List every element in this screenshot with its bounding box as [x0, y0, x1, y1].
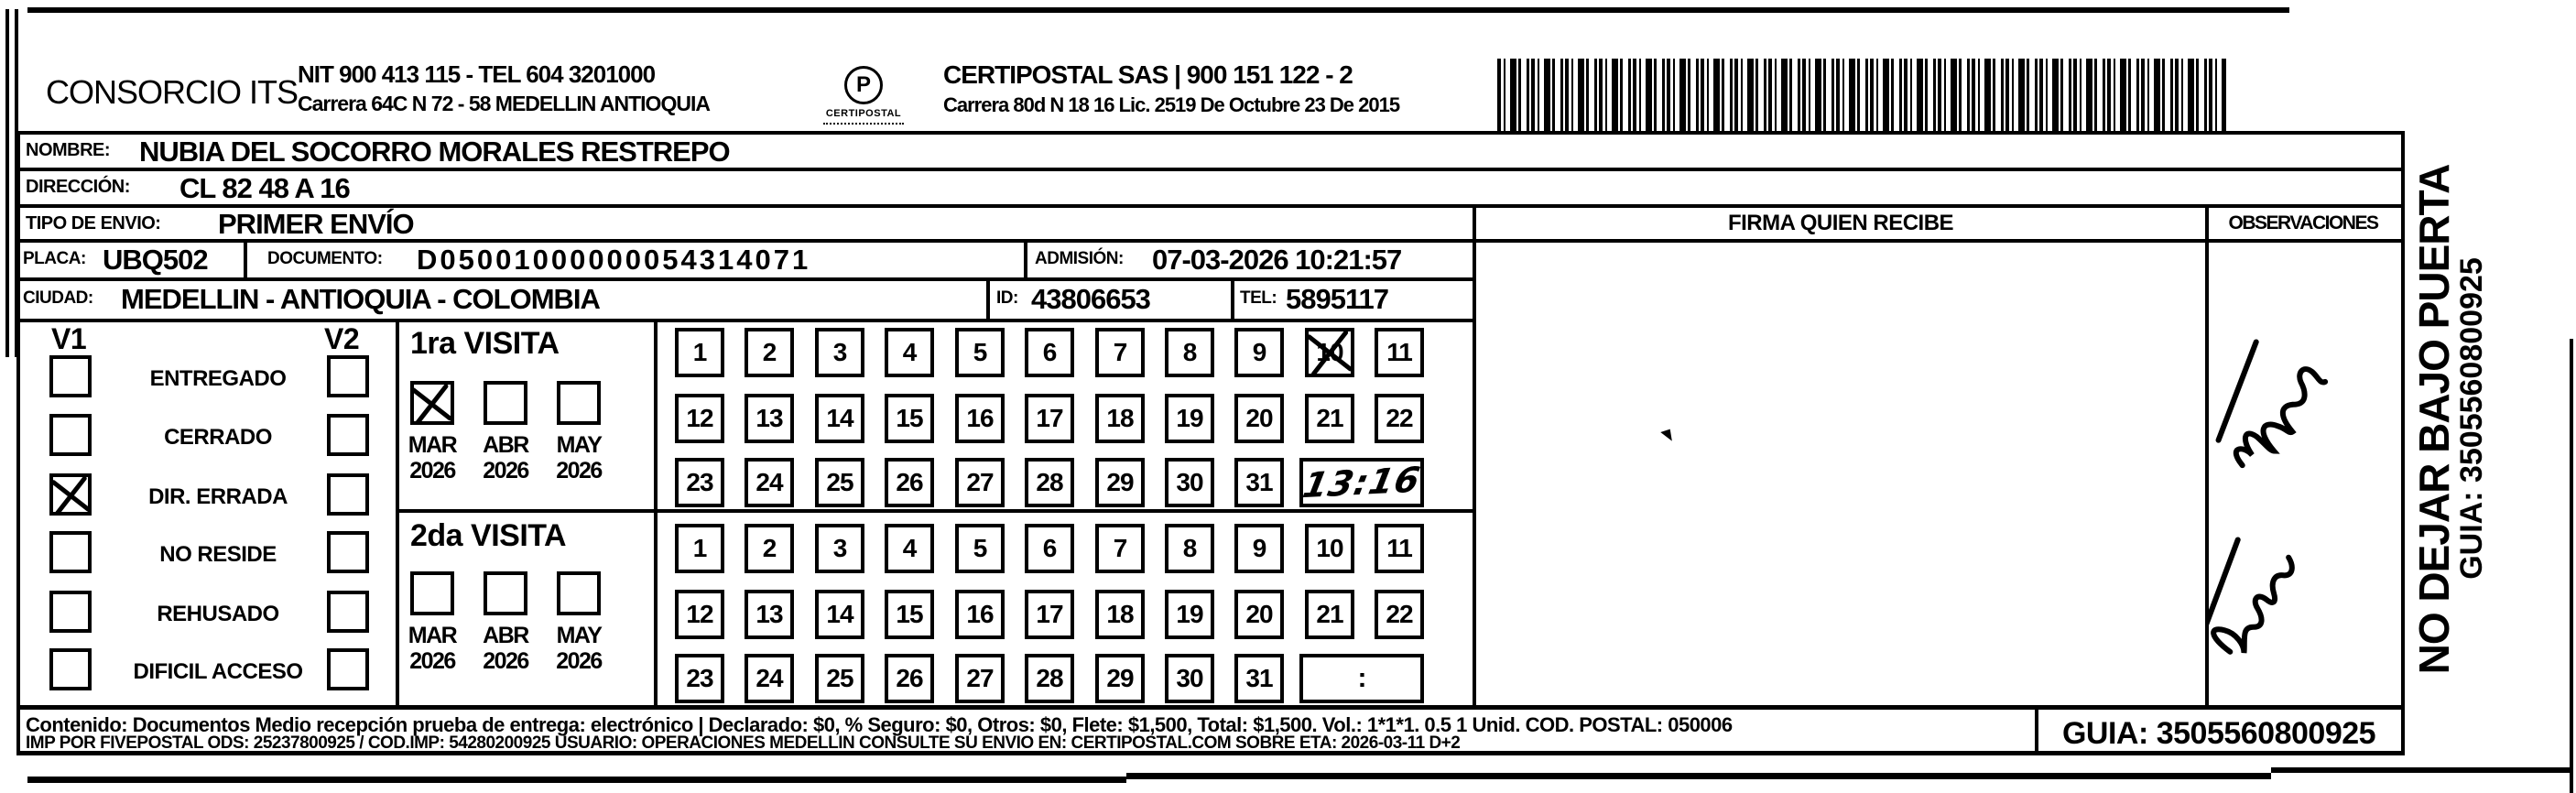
status-label-dir-errada: DIR. ERRADA	[108, 484, 328, 510]
day-number: 27	[966, 468, 993, 497]
certipostal-logo-icon: P	[844, 66, 883, 104]
company-nit-line: NIT 900 413 115 - TEL 604 3201000	[298, 60, 655, 89]
company-address-line: Carrera 64C N 72 - 58 MEDELLIN ANTIOQUIA	[298, 92, 710, 116]
visita2-day-19[interactable]: 19	[1165, 590, 1214, 639]
visita1-day-2[interactable]: 2	[745, 328, 794, 377]
day-number: 18	[1106, 404, 1133, 433]
documento-label: DOCUMENTO:	[267, 249, 383, 269]
day-number: 16	[966, 600, 993, 629]
logo-caption: CERTIPOSTAL	[818, 108, 909, 119]
scanned-delivery-form: { "header": { "company_left": "CONSORCIO…	[0, 0, 2576, 793]
day-number: 28	[1036, 468, 1062, 497]
day-number: 20	[1245, 600, 1272, 629]
visita1-time-value: 13:16	[1299, 460, 1424, 506]
day-number: 25	[826, 468, 853, 497]
scan-artifact-bottom-line	[27, 777, 1126, 783]
visita2-day-25[interactable]: 25	[815, 654, 864, 703]
visita1-day-27[interactable]: 27	[955, 458, 1005, 507]
day-number: 4	[903, 534, 917, 563]
visita2-day-22[interactable]: 22	[1375, 590, 1424, 639]
side-guia-text: GUIA: 3505560800925	[2454, 144, 2491, 693]
visita1-day-6[interactable]: 6	[1025, 328, 1074, 377]
visita1-day-14[interactable]: 14	[815, 394, 864, 443]
status-label-no-reside: NO RESIDE	[108, 542, 328, 568]
visita1-day-24[interactable]: 24	[745, 458, 794, 507]
visita2-day-27[interactable]: 27	[955, 654, 1005, 703]
visita2-day-10[interactable]: 10	[1305, 524, 1354, 573]
day-number: 29	[1106, 664, 1133, 693]
day-number: 5	[973, 534, 987, 563]
day-number: 7	[1114, 534, 1127, 563]
visita1-month-checkbox-may[interactable]	[557, 381, 601, 425]
nombre-label: NOMBRE:	[26, 140, 110, 161]
visita2-day-3[interactable]: 3	[815, 524, 864, 573]
visita2-day-15[interactable]: 15	[885, 590, 934, 639]
logo-letter: P	[856, 72, 871, 98]
visita2-day-18[interactable]: 18	[1095, 590, 1145, 639]
visita2-month-checkbox-mar[interactable]	[410, 571, 454, 615]
barcode	[1497, 59, 2226, 134]
visita1-month-checkbox-abr[interactable]	[484, 381, 527, 425]
ink-mark	[1660, 429, 1673, 444]
visita1-time-box[interactable]: 13:16	[1299, 458, 1424, 507]
table-line	[986, 277, 990, 322]
visita2-day-9[interactable]: 9	[1234, 524, 1284, 573]
v2-checkbox-no-reside[interactable]	[327, 531, 369, 573]
day-number: 22	[1386, 600, 1412, 629]
visita1-day-7[interactable]: 7	[1095, 328, 1145, 377]
visita2-day-30[interactable]: 30	[1165, 654, 1214, 703]
day-number: 11	[1386, 534, 1412, 563]
visita2-day-26[interactable]: 26	[885, 654, 934, 703]
visita2-day-5[interactable]: 5	[955, 524, 1005, 573]
status-label-dificil-acceso: DIFICIL ACCESO	[108, 659, 328, 685]
day-number: 10	[1316, 534, 1342, 563]
day-number: 17	[1036, 600, 1062, 629]
day-number: 9	[1253, 338, 1266, 367]
visita1-day-28[interactable]: 28	[1025, 458, 1074, 507]
visita-section: 1ra VISITA 2da VISITA MAR2026ABR2026MAY2…	[396, 319, 654, 705]
day-number: 25	[826, 664, 853, 693]
visita1-day-31[interactable]: 31	[1234, 458, 1284, 507]
visita1-year-label-abr: 2026	[473, 458, 538, 484]
scan-artifact-bottom-line	[1126, 773, 2271, 779]
v1-checkbox-rehusado[interactable]	[49, 591, 92, 633]
visita2-day-1[interactable]: 1	[675, 524, 724, 573]
day-number: 30	[1176, 468, 1202, 497]
day-number: 19	[1176, 404, 1202, 433]
visita2-year-label-mar: 2026	[399, 648, 465, 675]
visita2-day-12[interactable]: 12	[675, 590, 724, 639]
nombre-value: NUBIA DEL SOCORRO MORALES RESTREPO	[139, 136, 730, 168]
visita2-month-label-mar: MAR	[399, 623, 465, 649]
visita2-time-value: :	[1358, 663, 1366, 694]
ciudad-label: CIUDAD:	[23, 288, 93, 309]
visita1-day-25[interactable]: 25	[815, 458, 864, 507]
v1-column-header: V1	[51, 322, 86, 356]
status-label-rehusado: REHUSADO	[108, 602, 328, 627]
day-number: 6	[1043, 534, 1057, 563]
x-mark	[411, 382, 453, 424]
visita1-month-label-mar: MAR	[399, 432, 465, 459]
visita2-day-2[interactable]: 2	[745, 524, 794, 573]
day-number: 23	[686, 468, 712, 497]
v2-checkbox-entregado[interactable]	[327, 355, 369, 397]
daygrid-section: 1234567891011121314151617181920212223242…	[658, 319, 1473, 705]
observaciones-area[interactable]	[2205, 239, 2401, 705]
scan-artifact-right-line	[2570, 339, 2573, 793]
visita1-day-18[interactable]: 18	[1095, 394, 1145, 443]
visita1-month-label-abr: ABR	[473, 432, 538, 459]
day-number: 18	[1106, 600, 1133, 629]
day-number: 8	[1183, 534, 1197, 563]
day-number: 24	[755, 468, 782, 497]
visita1-day-17[interactable]: 17	[1025, 394, 1074, 443]
v1-checkbox-entregado[interactable]	[49, 355, 92, 397]
day-number: 12	[686, 600, 712, 629]
day-number: 6	[1043, 338, 1057, 367]
visita1-day-1[interactable]: 1	[675, 328, 724, 377]
day-number: 7	[1114, 338, 1127, 367]
day-number: 14	[826, 600, 853, 629]
status-label-entregado: ENTREGADO	[108, 366, 328, 392]
v2-checkbox-cerrado[interactable]	[327, 414, 369, 456]
visita1-title: 1ra VISITA	[410, 326, 560, 362]
documento-value: D05001000000054314071	[417, 244, 810, 277]
day-number: 2	[763, 534, 777, 563]
visita1-day-30[interactable]: 30	[1165, 458, 1214, 507]
day-number: 11	[1386, 338, 1412, 367]
visita1-day-10[interactable]: 10	[1305, 328, 1354, 377]
day-number: 10	[1316, 338, 1342, 367]
visita1-day-13[interactable]: 13	[745, 394, 794, 443]
visita1-day-3[interactable]: 3	[815, 328, 864, 377]
visita2-month-label-abr: ABR	[473, 623, 538, 649]
visita2-year-label-may: 2026	[546, 648, 612, 675]
visita2-day-14[interactable]: 14	[815, 590, 864, 639]
x-mark	[50, 474, 91, 515]
day-number: 19	[1176, 600, 1202, 629]
visita1-month-checkbox-mar[interactable]	[410, 381, 454, 425]
visita1-year-label-mar: 2026	[399, 458, 465, 484]
visita1-day-9[interactable]: 9	[1234, 328, 1284, 377]
table-line	[16, 277, 1476, 281]
placa-label: PLACA:	[23, 249, 86, 269]
day-number: 29	[1106, 468, 1133, 497]
visita1-day-16[interactable]: 16	[955, 394, 1005, 443]
visita1-day-23[interactable]: 23	[675, 458, 724, 507]
day-number: 31	[1245, 664, 1272, 693]
visita2-day-17[interactable]: 17	[1025, 590, 1074, 639]
scan-artifact-top-line	[27, 7, 2289, 13]
visita2-title: 2da VISITA	[410, 518, 566, 554]
firma-area[interactable]	[1476, 239, 2205, 705]
visita2-year-label-abr: 2026	[473, 648, 538, 675]
id-label: ID:	[996, 288, 1018, 309]
day-number: 3	[833, 534, 847, 563]
day-number: 24	[755, 664, 782, 693]
visita2-day-23[interactable]: 23	[675, 654, 724, 703]
visita1-year-label-may: 2026	[546, 458, 612, 484]
tel-value: 5895117	[1286, 283, 1388, 316]
day-number: 16	[966, 404, 993, 433]
table-line	[16, 131, 2405, 135]
visita1-day-11[interactable]: 11	[1375, 328, 1424, 377]
ciudad-value: MEDELLIN - ANTIOQUIA - COLOMBIA	[121, 283, 600, 316]
side-warning-text: NO DEJAR BAJO PUERTA	[2409, 99, 2457, 740]
day-number: 15	[896, 600, 922, 629]
day-number: 15	[896, 404, 922, 433]
day-number: 13	[755, 404, 782, 433]
day-number: 27	[966, 664, 993, 693]
placa-value: UBQ502	[103, 244, 208, 277]
visita1-day-29[interactable]: 29	[1095, 458, 1145, 507]
footer-guia: GUIA: 3505560800925	[2042, 716, 2396, 752]
observaciones-header: OBSERVACIONES	[2205, 212, 2401, 234]
day-number: 2	[763, 338, 777, 367]
v2-checkbox-dir-errada[interactable]	[327, 473, 369, 516]
v1-checkbox-cerrado[interactable]	[49, 414, 92, 456]
v1-checkbox-dir-errada[interactable]	[49, 473, 92, 516]
status-section: V1 V2 ENTREGADOCERRADODIR. ERRADANO RESI…	[16, 319, 396, 705]
day-number: 12	[686, 404, 712, 433]
admision-label: ADMISIÓN:	[1035, 249, 1124, 269]
visita1-day-22[interactable]: 22	[1375, 394, 1424, 443]
visita2-day-6[interactable]: 6	[1025, 524, 1074, 573]
visita2-day-7[interactable]: 7	[1095, 524, 1145, 573]
day-number: 1	[693, 338, 707, 367]
logo-underline	[823, 123, 904, 125]
certipostal-name-line: CERTIPOSTAL SAS | 900 151 122 - 2	[943, 60, 1353, 90]
visita2-day-13[interactable]: 13	[745, 590, 794, 639]
table-line	[1231, 277, 1234, 322]
table-line	[1024, 239, 1027, 281]
day-number: 14	[826, 404, 853, 433]
firma-header: FIRMA QUIEN RECIBE	[1476, 211, 2205, 236]
visita2-day-11[interactable]: 11	[1375, 524, 1424, 573]
scan-artifact-bottom-line	[2271, 767, 2570, 773]
id-value: 43806653	[1031, 283, 1150, 316]
day-number: 9	[1253, 534, 1266, 563]
table-line	[244, 239, 247, 281]
visita2-day-31[interactable]: 31	[1234, 654, 1284, 703]
visita2-day-16[interactable]: 16	[955, 590, 1005, 639]
visita1-day-26[interactable]: 26	[885, 458, 934, 507]
visita1-day-4[interactable]: 4	[885, 328, 934, 377]
visita2-day-21[interactable]: 21	[1305, 590, 1354, 639]
day-number: 23	[686, 664, 712, 693]
certipostal-license-line: Carrera 80d N 18 16 Lic. 2519 De Octubre…	[943, 93, 1399, 117]
day-number: 20	[1245, 404, 1272, 433]
tipo-envio-label: TIPO DE ENVIO:	[26, 213, 160, 234]
visita2-day-28[interactable]: 28	[1025, 654, 1074, 703]
visita2-month-label-may: MAY	[546, 623, 612, 649]
v2-column-header: V2	[324, 322, 359, 356]
company-name: CONSORCIO ITS	[46, 73, 298, 112]
day-number: 28	[1036, 664, 1062, 693]
status-label-cerrado: CERRADO	[108, 425, 328, 451]
day-number: 13	[755, 600, 782, 629]
handwritten-note	[2205, 239, 2401, 705]
scan-artifact-left-line	[5, 9, 9, 357]
direccion-label: DIRECCIÓN:	[26, 177, 130, 198]
tel-label: TEL:	[1240, 288, 1277, 309]
v2-checkbox-dificil-acceso[interactable]	[327, 648, 369, 690]
day-number: 4	[903, 338, 917, 367]
day-number: 21	[1316, 600, 1342, 629]
day-number: 17	[1036, 404, 1062, 433]
visita1-month-label-may: MAY	[546, 432, 612, 459]
visita2-day-20[interactable]: 20	[1234, 590, 1284, 639]
visita2-time-box[interactable]: :	[1299, 654, 1424, 703]
visita1-day-15[interactable]: 15	[885, 394, 934, 443]
day-number: 21	[1316, 404, 1342, 433]
visita1-day-8[interactable]: 8	[1165, 328, 1214, 377]
admision-value: 07-03-2026 10:21:57	[1152, 244, 1401, 277]
day-number: 26	[896, 468, 922, 497]
visita2-month-checkbox-may[interactable]	[557, 571, 601, 615]
visita1-day-21[interactable]: 21	[1305, 394, 1354, 443]
visita1-day-19[interactable]: 19	[1165, 394, 1214, 443]
v2-checkbox-rehusado[interactable]	[327, 591, 369, 633]
day-number: 1	[693, 534, 707, 563]
day-number: 8	[1183, 338, 1197, 367]
visita1-day-5[interactable]: 5	[955, 328, 1005, 377]
day-number: 30	[1176, 664, 1202, 693]
visita2-day-24[interactable]: 24	[745, 654, 794, 703]
v1-checkbox-dificil-acceso[interactable]	[49, 648, 92, 690]
visita1-day-20[interactable]: 20	[1234, 394, 1284, 443]
day-number: 22	[1386, 404, 1412, 433]
table-line	[16, 705, 2405, 710]
footer-imp-line: IMP POR FIVEPOSTAL ODS: 25237800925 / CO…	[26, 733, 1460, 754]
day-number: 31	[1245, 468, 1272, 497]
visita2-day-8[interactable]: 8	[1165, 524, 1214, 573]
v1-checkbox-no-reside[interactable]	[49, 531, 92, 573]
table-line	[2401, 131, 2405, 755]
day-number: 26	[896, 664, 922, 693]
day-number: 3	[833, 338, 847, 367]
visita1-day-12[interactable]: 12	[675, 394, 724, 443]
day-number: 5	[973, 338, 987, 367]
visita2-day-4[interactable]: 4	[885, 524, 934, 573]
visita2-day-29[interactable]: 29	[1095, 654, 1145, 703]
direccion-value: CL 82 48 A 16	[179, 172, 350, 205]
visita2-month-checkbox-abr[interactable]	[484, 571, 527, 615]
tipo-envio-value: PRIMER ENVÍO	[218, 208, 414, 241]
table-line	[2035, 705, 2038, 755]
